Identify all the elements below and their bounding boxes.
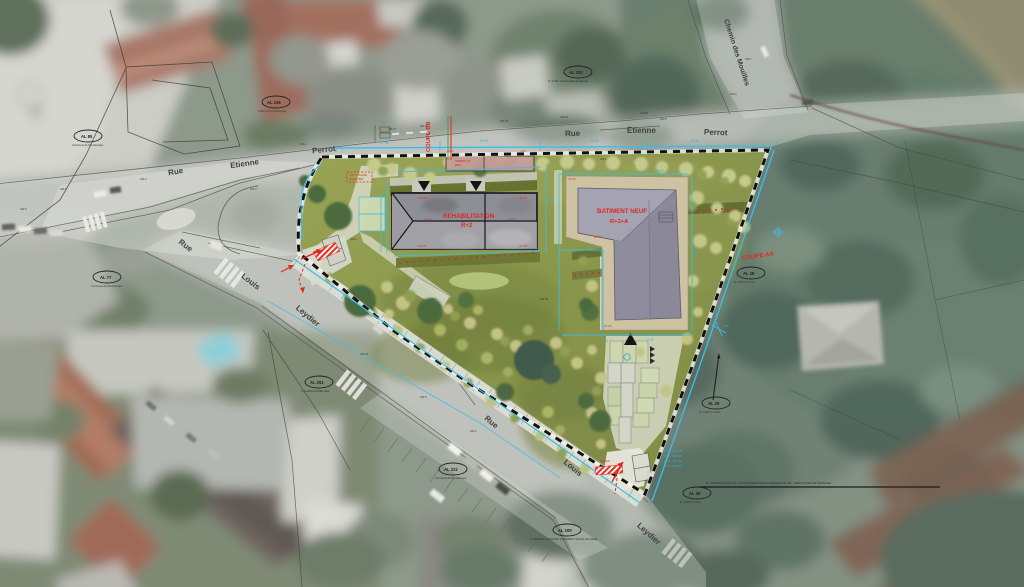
svg-text:17.1 - 324.15: 17.1 - 324.15 (664, 449, 682, 453)
svg-text:324.35: 324.35 (540, 297, 548, 301)
svg-text:AL 28: AL 28 (743, 271, 755, 276)
svg-text:LA REHABILITATION DU LOGEMENT: LA REHABILITATION DU LOGEMENT SOCIAL EN … (530, 537, 598, 541)
svg-text:324.6: 324.6 (20, 207, 27, 211)
svg-text:324.1: 324.1 (600, 157, 607, 161)
svg-text:24.05: 24.05 (604, 324, 612, 328)
svg-text:324.3: 324.3 (250, 187, 257, 191)
svg-text:+27.8: +27.8 (508, 217, 516, 221)
svg-text:AL 236: AL 236 (267, 100, 281, 105)
svg-text:324.4: 324.4 (140, 177, 147, 181)
svg-text:N. INTERDICTION DE CONSTRUIRE: N. INTERDICTION DE CONSTRUIRE DANS LA BA… (706, 481, 831, 485)
svg-text:24.05: 24.05 (566, 169, 574, 173)
svg-text:RDC: RDC (455, 163, 462, 167)
svg-text:7m: 7m (724, 324, 729, 328)
svg-text:Rue: Rue (565, 129, 581, 139)
svg-text:18.06: 18.06 (551, 197, 555, 205)
svg-text:Commune de Pont-Eveque: Commune de Pont-Eveque (72, 143, 104, 147)
svg-text:Commune de Pont-Eveque: Commune de Pont-Eveque (91, 284, 123, 288)
svg-text:AL 30: AL 30 (689, 491, 701, 496)
svg-text:N. du Bief de Pont-Mat de Char: N. du Bief de Pont-Mat de Charvas (548, 79, 589, 83)
svg-text:17.4 - 324.60: 17.4 - 324.60 (664, 464, 682, 468)
svg-text:Etienne: Etienne (627, 126, 656, 135)
svg-text:R+2: R+2 (461, 223, 473, 229)
svg-text:+24.05: +24.05 (417, 196, 427, 200)
svg-text:Chemin du Pont-Eveque: Chemin du Pont-Eveque (258, 109, 287, 113)
svg-text:ACCES: ACCES (600, 459, 610, 463)
svg-text:324.5: 324.5 (430, 297, 437, 301)
svg-text:324.2: 324.2 (300, 142, 307, 146)
svg-text:AL 152: AL 152 (569, 70, 583, 75)
svg-text:N. AUZOLAT Jean: N. AUZOLAT Jean (734, 280, 756, 284)
svg-text:324.5: 324.5 (420, 395, 427, 399)
svg-text:+24.05: +24.05 (518, 244, 528, 248)
svg-text:324.45: 324.45 (360, 352, 368, 356)
svg-text:28.02: 28.02 (594, 235, 602, 239)
svg-text:AL 85: AL 85 (81, 134, 93, 139)
svg-text:AL 77: AL 77 (100, 275, 112, 280)
svg-text:+27.8: +27.8 (424, 217, 432, 221)
svg-text:AL 251: AL 251 (310, 380, 324, 385)
svg-text:28.06: 28.06 (693, 250, 697, 258)
svg-text:324.05: 324.05 (500, 119, 508, 123)
svg-text:323.95: 323.95 (640, 111, 648, 115)
svg-text:BATIMENT NEUF: BATIMENT NEUF (597, 208, 647, 215)
svg-text:AL 100: AL 100 (558, 528, 572, 533)
svg-text:REHABILITATION: REHABILITATION (443, 213, 495, 220)
svg-text:27.96: 27.96 (380, 141, 389, 145)
svg-text:Perrot: Perrot (704, 128, 728, 138)
svg-text:324.6: 324.6 (470, 429, 477, 433)
svg-text:324.5: 324.5 (60, 187, 67, 191)
svg-text:N. DJADAOUDJEE Said: N. DJADAOUDJEE Said (301, 389, 330, 393)
svg-text:AL 29: AL 29 (708, 401, 720, 406)
svg-text:29.06: 29.06 (590, 139, 599, 143)
svg-text:324.10: 324.10 (420, 124, 428, 128)
svg-text:17.3 - 324.45: 17.3 - 324.45 (664, 459, 682, 463)
svg-text:323.9: 323.9 (660, 117, 667, 121)
svg-text:N. AUZOLAT Jean: N. AUZOLAT Jean (699, 410, 721, 414)
svg-text:Commune de Pont-Eveque: Commune de Pont-Eveque (435, 476, 467, 480)
svg-text:45.06: 45.06 (690, 139, 699, 143)
svg-text:+24.05: +24.05 (518, 196, 528, 200)
svg-text:CHANTIER: CHANTIER (349, 177, 363, 181)
svg-text:AL 322: AL 322 (444, 467, 458, 472)
svg-text:324.15: 324.15 (388, 127, 396, 131)
svg-text:323.8: 323.8 (730, 92, 737, 96)
svg-text:29.06: 29.06 (480, 139, 489, 143)
svg-text:17.2 - 324.30: 17.2 - 324.30 (664, 454, 682, 458)
svg-text:+24.1: +24.1 (520, 149, 527, 153)
svg-text:R+3+A: R+3+A (610, 219, 629, 225)
svg-text:+24.1: +24.1 (447, 149, 454, 153)
svg-text:16.93: 16.93 (656, 169, 664, 173)
svg-text:324.4: 324.4 (350, 237, 357, 241)
svg-text:17.50: 17.50 (646, 338, 654, 342)
svg-text:N. AUZOLAT Jean: N. AUZOLAT Jean (680, 500, 702, 504)
svg-text:323.7: 323.7 (745, 57, 752, 61)
svg-text:17.50: 17.50 (600, 339, 608, 343)
svg-text:24.05: 24.05 (568, 177, 576, 181)
svg-text:324.02: 324.02 (560, 115, 568, 119)
svg-text:+24.05: +24.05 (417, 244, 427, 248)
